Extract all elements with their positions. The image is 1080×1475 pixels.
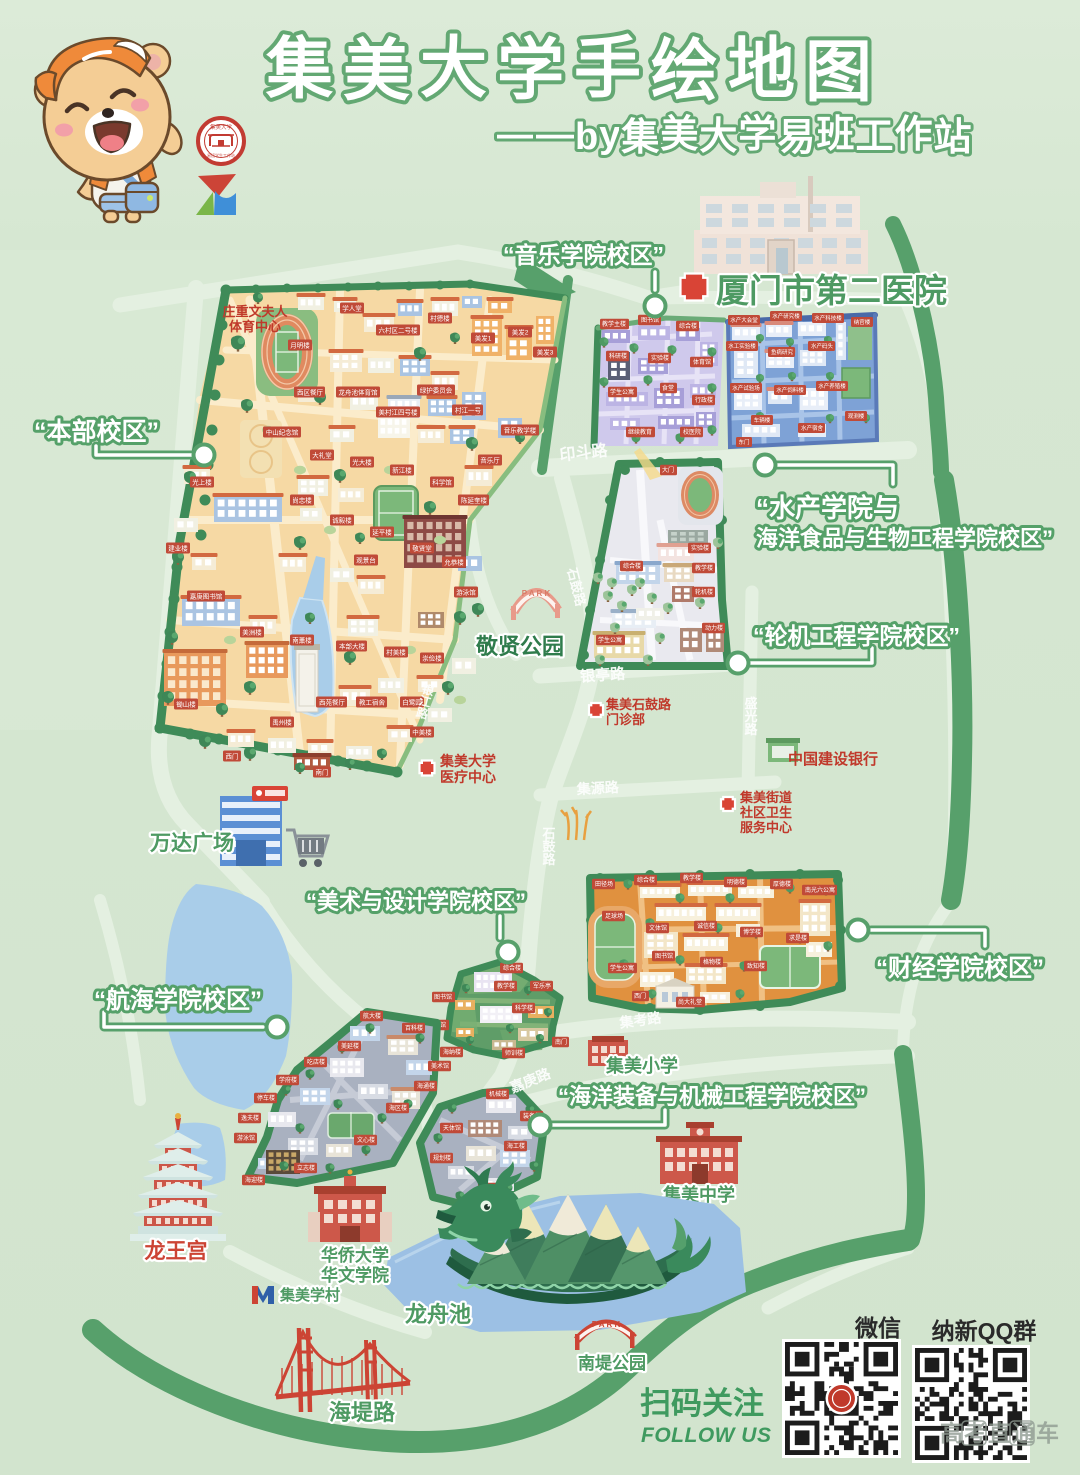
svg-text:华侨大学: 华侨大学 <box>321 1245 389 1265</box>
svg-text:中美楼: 中美楼 <box>412 727 432 736</box>
svg-text:观景台: 观景台 <box>356 555 376 564</box>
svg-text:诚毅楼: 诚毅楼 <box>332 515 352 524</box>
svg-text:逸夫楼: 逸夫楼 <box>241 1114 259 1122</box>
svg-text:尚忠楼: 尚忠楼 <box>292 495 312 504</box>
svg-text:学生公寓: 学生公寓 <box>610 388 634 396</box>
svg-text:求是楼: 求是楼 <box>789 934 807 942</box>
svg-text:科学馆: 科学馆 <box>432 477 452 486</box>
svg-text:集美大学手绘地图: 集美大学手绘地图 <box>265 31 882 110</box>
svg-text:集美街道: 集美街道 <box>739 790 792 805</box>
svg-text:海工楼: 海工楼 <box>507 1142 525 1150</box>
svg-text:水产研究楼: 水产研究楼 <box>772 312 800 320</box>
svg-text:音乐厅: 音乐厅 <box>480 455 500 464</box>
svg-text:“轮机工程学院校区”: “轮机工程学院校区” <box>753 623 960 649</box>
svg-text:盛光路: 盛光路 <box>743 696 758 737</box>
svg-text:纳官楼: 纳官楼 <box>854 318 871 326</box>
svg-text:综合楼: 综合楼 <box>637 876 655 884</box>
svg-text:停车楼: 停车楼 <box>257 1094 275 1102</box>
svg-text:厚德楼: 厚德楼 <box>773 880 791 888</box>
svg-text:文心楼: 文心楼 <box>357 1136 375 1144</box>
svg-text:游泳馆: 游泳馆 <box>456 587 476 596</box>
svg-text:图书馆: 图书馆 <box>434 993 452 1001</box>
svg-text:动力楼: 动力楼 <box>705 624 723 632</box>
svg-text:水产饲料楼: 水产饲料楼 <box>776 386 804 394</box>
svg-text:教工宿舍: 教工宿舍 <box>359 697 386 706</box>
svg-text:水产宿舍: 水产宿舍 <box>801 424 824 432</box>
svg-text:美村江四号楼: 美村江四号楼 <box>379 407 419 416</box>
svg-text:允恭楼: 允恭楼 <box>444 557 464 566</box>
svg-text:美发2: 美发2 <box>512 327 529 336</box>
svg-text:美发1: 美发1 <box>475 333 492 342</box>
svg-text:机械楼: 机械楼 <box>489 1090 507 1098</box>
svg-text:集美大学: 集美大学 <box>210 123 233 131</box>
svg-text:教学楼: 教学楼 <box>695 564 713 572</box>
svg-text:集美石鼓路: 集美石鼓路 <box>605 697 672 712</box>
svg-text:鱼病研究: 鱼病研究 <box>771 348 794 356</box>
svg-text:食堂: 食堂 <box>662 384 674 392</box>
svg-text:陈延奎楼: 陈延奎楼 <box>461 495 488 504</box>
svg-text:高考直通车: 高考直通车 <box>940 1420 1060 1446</box>
svg-text:“本部校区”: “本部校区” <box>34 417 159 446</box>
svg-text:水产科技楼: 水产科技楼 <box>814 314 842 322</box>
svg-text:教学主楼: 教学主楼 <box>602 320 626 328</box>
svg-text:水产大会堂: 水产大会堂 <box>730 316 758 324</box>
svg-text:“音乐学院校区”: “音乐学院校区” <box>503 242 664 268</box>
svg-text:南门: 南门 <box>555 1038 567 1046</box>
svg-text:综合楼: 综合楼 <box>623 562 641 570</box>
svg-text:海区楼: 海区楼 <box>389 1104 407 1112</box>
svg-text:海通楼: 海通楼 <box>417 1082 435 1090</box>
svg-text:图书馆: 图书馆 <box>655 952 673 960</box>
svg-text:易班学生工作站: 易班学生工作站 <box>207 152 235 158</box>
svg-text:“财经学院校区”: “财经学院校区” <box>876 954 1044 982</box>
svg-text:百科楼: 百科楼 <box>405 1024 423 1032</box>
svg-text:村美楼: 村美楼 <box>386 647 406 656</box>
svg-text:集美学村: 集美学村 <box>279 1286 340 1304</box>
svg-text:美发3: 美发3 <box>537 347 554 356</box>
svg-text:敬贤堂: 敬贤堂 <box>412 543 432 552</box>
svg-text:美洲楼: 美洲楼 <box>242 627 262 636</box>
svg-text:扫码关注: 扫码关注 <box>640 1386 764 1421</box>
svg-text:水产码头: 水产码头 <box>811 342 834 350</box>
svg-text:村江一号: 村江一号 <box>455 405 482 414</box>
svg-text:崇俭楼: 崇俭楼 <box>422 653 442 662</box>
svg-text:绿护委员会: 绿护委员会 <box>420 385 453 394</box>
svg-text:“航海学院校区”: “航海学院校区” <box>94 986 262 1014</box>
svg-text:学生公寓: 学生公寓 <box>598 636 622 644</box>
svg-text:东门: 东门 <box>738 438 749 446</box>
svg-text:大门: 大门 <box>662 466 674 474</box>
svg-text:敬贤公园: 敬贤公园 <box>475 634 564 659</box>
svg-text:P A R K: P A R K <box>592 1320 621 1329</box>
svg-text:观测楼: 观测楼 <box>848 412 865 420</box>
svg-text:厦门市第二医院: 厦门市第二医院 <box>716 272 947 309</box>
svg-text:西门: 西门 <box>226 751 239 760</box>
svg-text:教学楼: 教学楼 <box>497 982 515 990</box>
svg-text:“水产学院与: “水产学院与 <box>756 493 899 523</box>
svg-text:龙舟池: 龙舟池 <box>405 1302 471 1327</box>
svg-text:中山纪念馆: 中山纪念馆 <box>266 427 299 436</box>
svg-text:行政楼: 行政楼 <box>695 396 713 404</box>
svg-text:继续教育: 继续教育 <box>628 428 652 436</box>
svg-text:学人堂: 学人堂 <box>342 303 362 312</box>
svg-text:本部大楼: 本部大楼 <box>339 641 366 650</box>
svg-text:海迎楼: 海迎楼 <box>245 1176 263 1184</box>
svg-text:南薰楼: 南薰楼 <box>292 635 312 644</box>
svg-text:尚大礼堂: 尚大礼堂 <box>678 998 702 1006</box>
svg-text:微信: 微信 <box>854 1315 901 1341</box>
svg-text:校医院: 校医院 <box>683 428 701 436</box>
svg-text:庄重文夫人: 庄重文夫人 <box>222 304 288 319</box>
svg-text:南门: 南门 <box>316 767 329 776</box>
svg-text:P A R K: P A R K <box>522 589 551 598</box>
svg-text:教学楼: 教学楼 <box>683 874 701 882</box>
svg-text:实验楼: 实验楼 <box>691 544 709 552</box>
svg-text:科研楼: 科研楼 <box>609 352 627 360</box>
svg-text:——by集美大学易班工作站: ——by集美大学易班工作站 <box>497 113 973 159</box>
svg-text:水产养殖楼: 水产养殖楼 <box>818 382 846 390</box>
svg-text:学生公寓: 学生公寓 <box>610 964 634 972</box>
svg-text:大礼堂: 大礼堂 <box>312 450 332 459</box>
svg-text:锄山楼: 锄山楼 <box>176 699 196 708</box>
svg-text:游泳馆: 游泳馆 <box>237 1134 255 1142</box>
svg-text:银亭路: 银亭路 <box>580 664 627 685</box>
svg-text:格物楼: 格物楼 <box>703 958 721 966</box>
svg-text:石鼓路: 石鼓路 <box>541 826 556 867</box>
svg-text:学府楼: 学府楼 <box>279 1076 297 1084</box>
svg-text:轮机楼: 轮机楼 <box>695 588 713 596</box>
svg-text:服务中心: 服务中心 <box>740 820 792 835</box>
svg-text:立志楼: 立志楼 <box>297 1164 315 1172</box>
svg-text:科学楼: 科学楼 <box>515 1004 533 1012</box>
svg-text:西区餐厅: 西区餐厅 <box>297 387 324 396</box>
svg-text:美术馆: 美术馆 <box>431 1062 449 1070</box>
svg-text:车辆楼: 车辆楼 <box>754 416 771 424</box>
svg-text:田径场: 田径场 <box>595 880 613 888</box>
svg-text:军乐亭: 军乐亭 <box>533 982 551 990</box>
svg-text:海纳楼: 海纳楼 <box>443 1048 461 1056</box>
svg-text:南堤公园: 南堤公园 <box>578 1353 646 1373</box>
svg-text:集美大学: 集美大学 <box>439 753 496 769</box>
svg-text:综合楼: 综合楼 <box>503 964 521 972</box>
svg-text:西门: 西门 <box>634 992 646 1000</box>
svg-text:医疗中心: 医疗中心 <box>440 769 496 785</box>
svg-text:“美术与设计学院校区”: “美术与设计学院校区” <box>306 889 526 914</box>
svg-text:万达广场: 万达广场 <box>149 831 234 855</box>
svg-text:体育中心: 体育中心 <box>229 319 281 334</box>
svg-text:嘉庚图书馆: 嘉庚图书馆 <box>190 591 223 600</box>
svg-text:水工实验楼: 水工实验楼 <box>728 342 756 350</box>
svg-text:华文学院: 华文学院 <box>321 1265 389 1285</box>
svg-text:明德楼: 明德楼 <box>727 878 745 886</box>
svg-text:航大楼: 航大楼 <box>363 1012 381 1020</box>
svg-text:新江楼: 新江楼 <box>392 465 412 474</box>
svg-text:规划楼: 规划楼 <box>433 1154 451 1162</box>
svg-text:村德楼: 村德楼 <box>430 313 450 322</box>
svg-text:海堤路: 海堤路 <box>329 1400 396 1425</box>
svg-text:水产试验场: 水产试验场 <box>732 384 760 392</box>
svg-text:集美小学: 集美小学 <box>605 1055 678 1076</box>
svg-text:体育馆: 体育馆 <box>693 358 711 366</box>
svg-text:致知楼: 致知楼 <box>747 962 765 970</box>
svg-text:海洋食品与生物工程学院校区”: 海洋食品与生物工程学院校区” <box>756 526 1053 551</box>
svg-text:光上楼: 光上楼 <box>192 477 212 486</box>
svg-text:建业楼: 建业楼 <box>168 543 188 552</box>
svg-text:南光六公寓: 南光六公寓 <box>805 886 835 894</box>
svg-text:FOLLOW US: FOLLOW US <box>641 1424 771 1447</box>
svg-text:禹州楼: 禹州楼 <box>272 717 292 726</box>
svg-text:光大楼: 光大楼 <box>352 457 372 466</box>
svg-text:天体馆: 天体馆 <box>443 1124 461 1132</box>
svg-text:延平楼: 延平楼 <box>372 527 392 536</box>
svg-text:师训楼: 师训楼 <box>505 1049 523 1057</box>
svg-text:音乐教学楼: 音乐教学楼 <box>504 425 537 434</box>
svg-text:社区卫生: 社区卫生 <box>739 805 792 820</box>
svg-text:文体馆: 文体馆 <box>649 924 667 932</box>
svg-text:龙王宫: 龙王宫 <box>145 1239 208 1263</box>
svg-text:六村区二号楼: 六村区二号楼 <box>379 325 419 334</box>
svg-text:足球场: 足球场 <box>605 912 623 920</box>
svg-text:“海洋装备与机械工程学院校区”: “海洋装备与机械工程学院校区” <box>558 1084 866 1109</box>
svg-text:实验楼: 实验楼 <box>651 354 669 362</box>
svg-text:美延楼: 美延楼 <box>341 1042 359 1050</box>
svg-text:博学楼: 博学楼 <box>743 928 761 936</box>
svg-text:中国建设银行: 中国建设银行 <box>788 750 878 768</box>
svg-text:诚信楼: 诚信楼 <box>697 922 715 930</box>
svg-text:月明楼: 月明楼 <box>290 340 310 349</box>
svg-text:吃店楼: 吃店楼 <box>307 1058 325 1066</box>
svg-text:龙舟池体育馆: 龙舟池体育馆 <box>339 387 379 396</box>
svg-text:纳新QQ群: 纳新QQ群 <box>932 1318 1037 1344</box>
svg-text:集源路: 集源路 <box>575 779 620 797</box>
svg-text:西苑餐厅: 西苑餐厅 <box>319 697 346 706</box>
svg-text:门诊部: 门诊部 <box>606 712 645 727</box>
svg-text:综合楼: 综合楼 <box>679 322 697 330</box>
